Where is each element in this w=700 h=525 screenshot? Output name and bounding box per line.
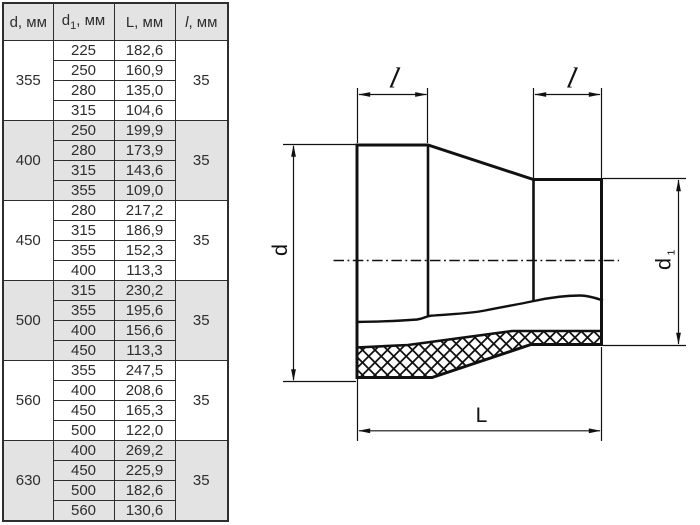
- svg-text:d1: d1: [652, 249, 678, 269]
- svg-text:d: d: [268, 244, 292, 256]
- svg-text:l: l: [564, 63, 580, 95]
- svg-text:l: l: [386, 63, 402, 95]
- svg-text:L: L: [476, 404, 488, 427]
